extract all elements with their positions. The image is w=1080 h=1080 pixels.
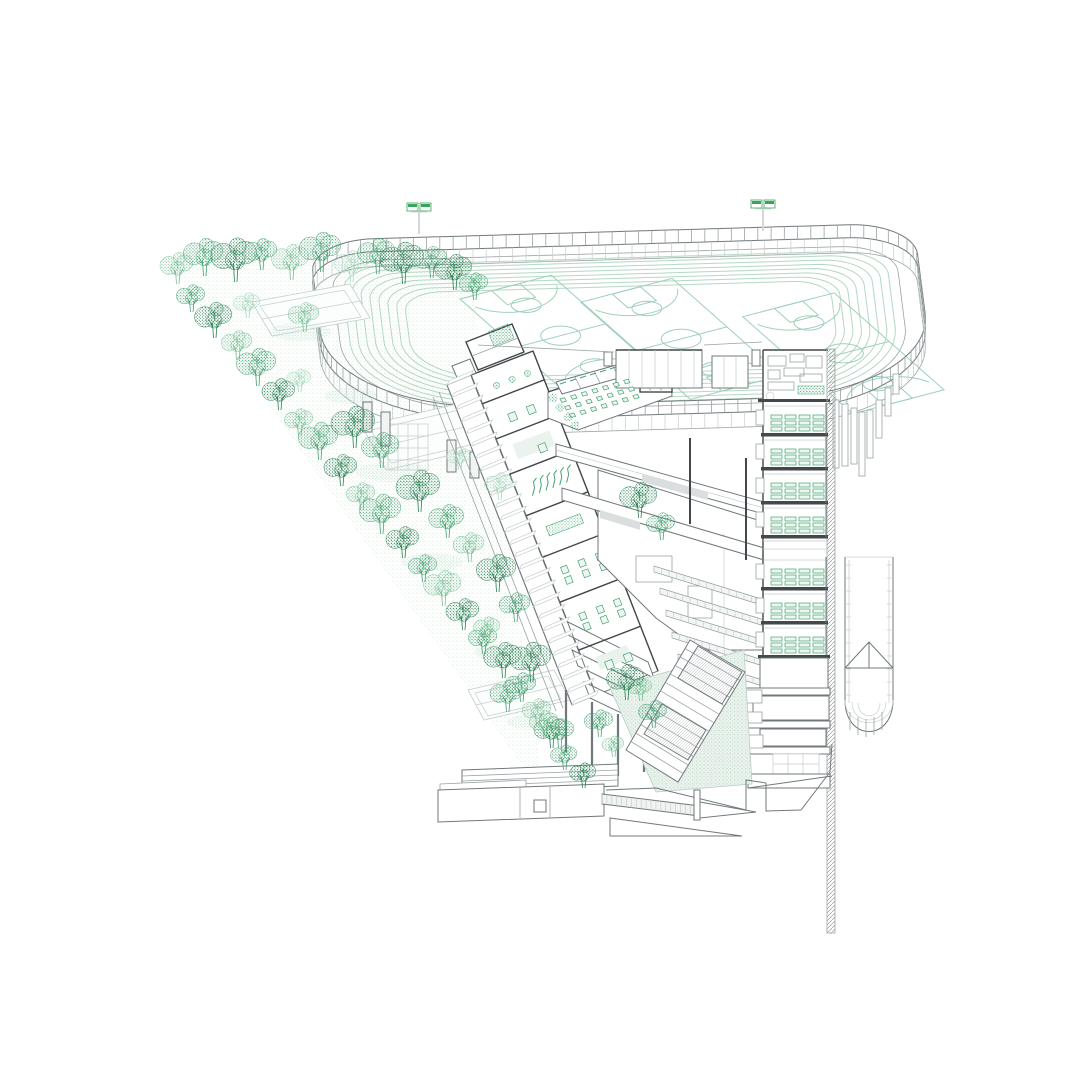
pavilion-body — [438, 784, 604, 822]
mech-green-unit — [798, 386, 824, 394]
section-cut-hatch-wall — [827, 349, 835, 933]
rooftop-structure — [712, 356, 748, 388]
architectural-drawing-canvas — [0, 0, 1080, 1080]
axonometric-architecture-drawing — [0, 0, 1080, 1080]
